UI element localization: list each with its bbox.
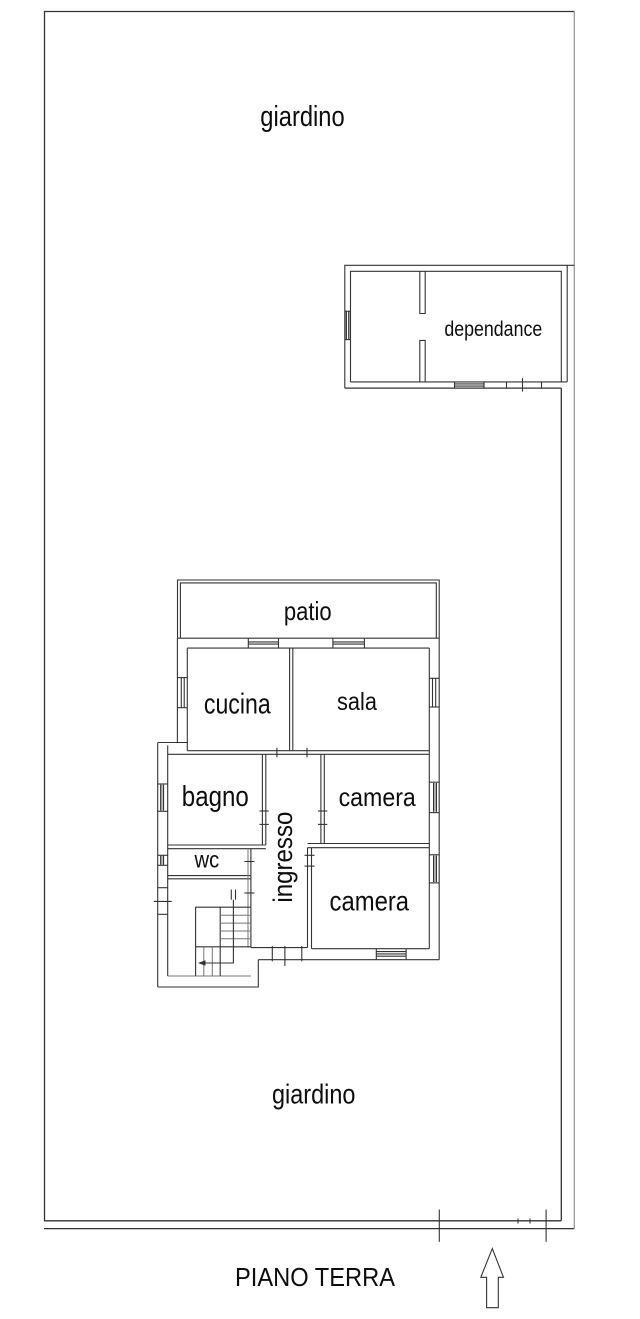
svg-text:sala: sala	[337, 688, 377, 716]
svg-text:dependance: dependance	[444, 318, 542, 341]
svg-text:bagno: bagno	[182, 781, 249, 813]
svg-text:patio: patio	[284, 596, 332, 626]
svg-text:wc: wc	[194, 847, 220, 873]
svg-text:cucina: cucina	[204, 688, 271, 720]
svg-text:camera: camera	[330, 885, 410, 916]
svg-text:camera: camera	[339, 782, 417, 812]
svg-text:PIANO TERRA: PIANO TERRA	[235, 1262, 396, 1292]
svg-text:giardino: giardino	[260, 101, 344, 133]
svg-text:ingresso: ingresso	[268, 812, 298, 903]
svg-text:giardino: giardino	[272, 1079, 355, 1110]
